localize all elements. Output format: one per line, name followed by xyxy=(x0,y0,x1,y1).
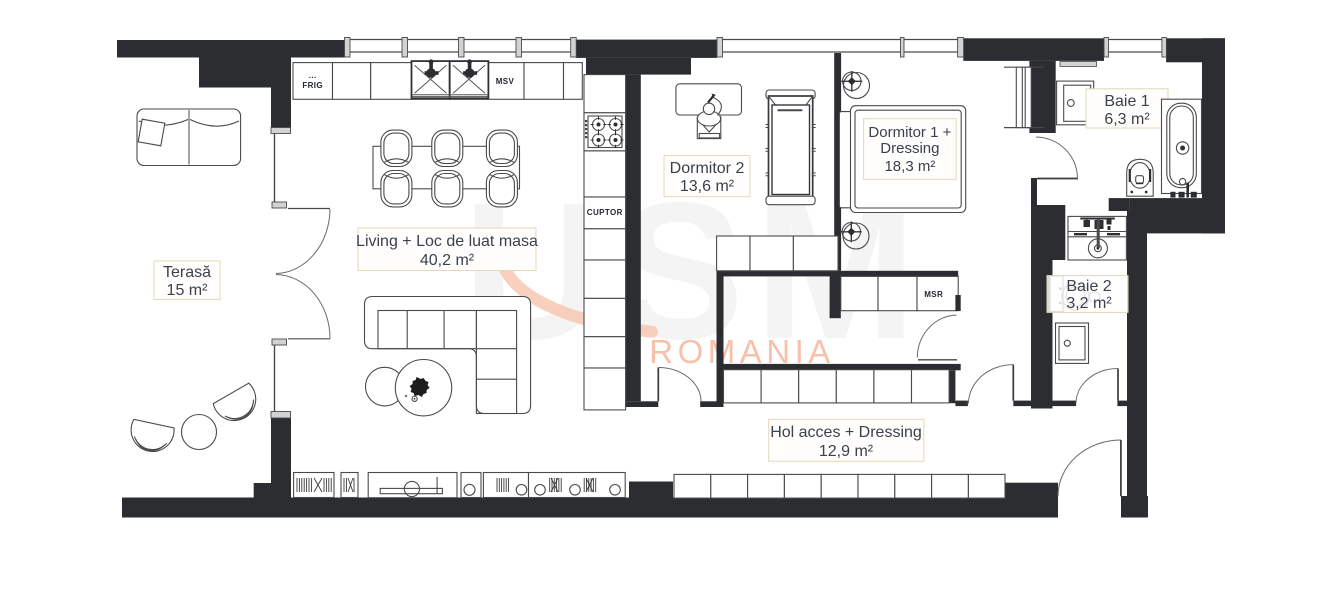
svg-text:FRIG: FRIG xyxy=(302,81,323,90)
svg-text:Hol acces + Dressing: Hol acces + Dressing xyxy=(770,424,922,441)
svg-text:6,3 m²: 6,3 m² xyxy=(1104,111,1150,128)
svg-text:Dormitor 2: Dormitor 2 xyxy=(670,160,745,177)
svg-text:15 m²: 15 m² xyxy=(167,282,209,299)
svg-text:40,2 m²: 40,2 m² xyxy=(420,252,475,269)
svg-text:12,9 m²: 12,9 m² xyxy=(819,443,874,460)
svg-text:...: ... xyxy=(309,71,317,80)
svg-text:Dormitor 1 +: Dormitor 1 + xyxy=(868,124,951,141)
svg-text:CUPTOR: CUPTOR xyxy=(587,208,623,217)
svg-text:Living + Loc de luat masa: Living + Loc de luat masa xyxy=(356,233,538,250)
svg-text:MSV: MSV xyxy=(496,77,515,86)
svg-text:Dressing: Dressing xyxy=(880,140,939,157)
svg-text:Baie 2: Baie 2 xyxy=(1066,278,1111,295)
svg-text:3,2 m²: 3,2 m² xyxy=(1066,295,1112,312)
svg-text:Baie 1: Baie 1 xyxy=(1104,93,1149,110)
svg-text:Terasă: Terasă xyxy=(163,264,211,281)
svg-text:18,3 m²: 18,3 m² xyxy=(884,158,935,175)
svg-text:13,6 m²: 13,6 m² xyxy=(680,178,735,195)
svg-text:MSR: MSR xyxy=(924,290,943,299)
